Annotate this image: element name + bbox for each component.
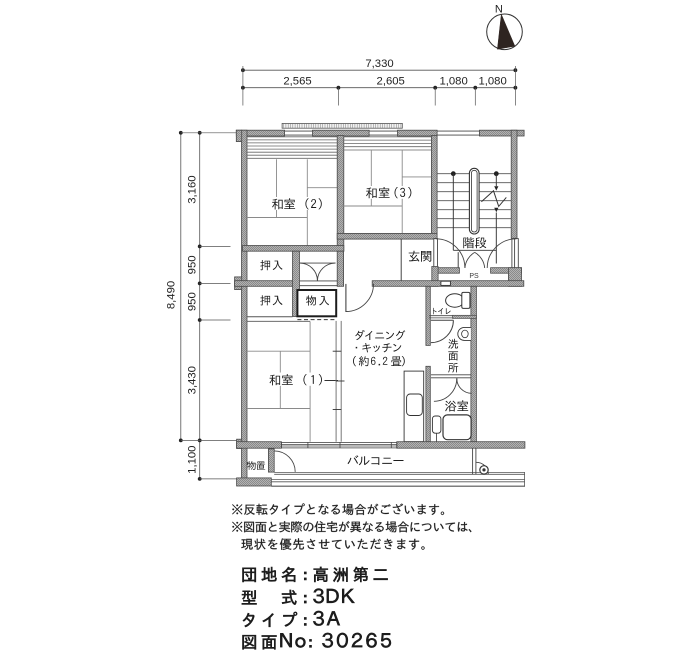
svg-text:950: 950 [186,255,198,274]
svg-text:950: 950 [186,292,198,311]
svg-text:2,605: 2,605 [377,76,405,88]
svg-text:N: N [495,3,503,15]
svg-text:1,080: 1,080 [478,76,506,88]
svg-text:8,490: 8,490 [165,281,177,309]
svg-text:1,100: 1,100 [186,446,198,474]
svg-text:3,160: 3,160 [186,175,198,203]
svg-text:PS: PS [469,273,479,280]
svg-text:1,080: 1,080 [439,76,467,88]
svg-text:7,330: 7,330 [365,58,393,70]
svg-text:2,565: 2,565 [283,76,311,88]
svg-text:3,430: 3,430 [186,366,198,394]
